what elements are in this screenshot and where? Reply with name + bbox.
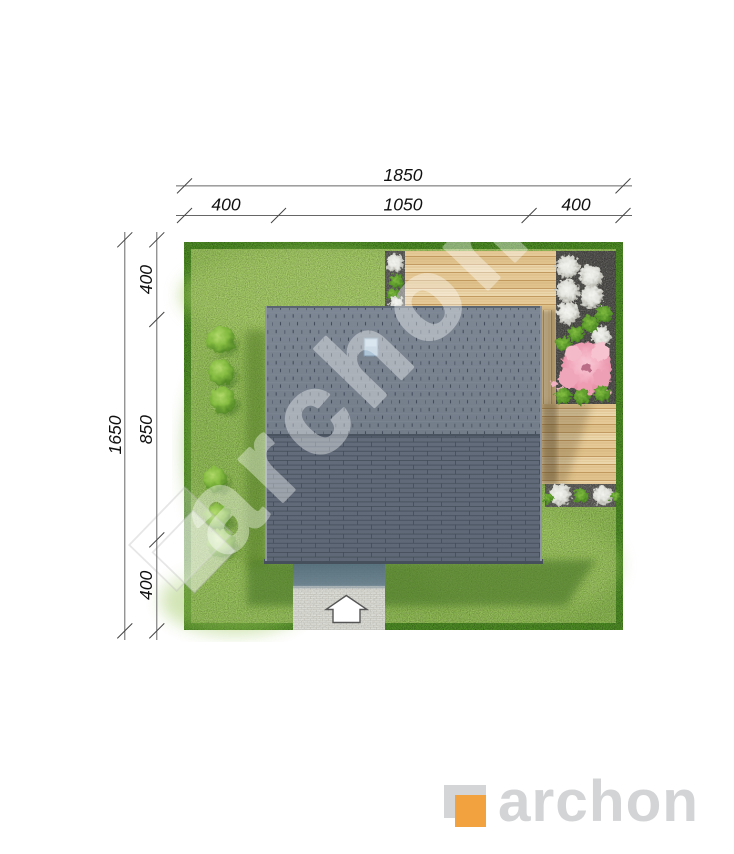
svg-text:archon: archon [498, 769, 699, 834]
svg-text:1850: 1850 [384, 165, 423, 185]
svg-text:400: 400 [136, 571, 156, 600]
svg-text:1650: 1650 [105, 415, 125, 454]
svg-text:400: 400 [211, 195, 240, 215]
svg-text:850: 850 [136, 415, 156, 444]
svg-text:400: 400 [136, 265, 156, 294]
svg-text:1050: 1050 [384, 195, 423, 215]
svg-text:400: 400 [561, 195, 590, 215]
